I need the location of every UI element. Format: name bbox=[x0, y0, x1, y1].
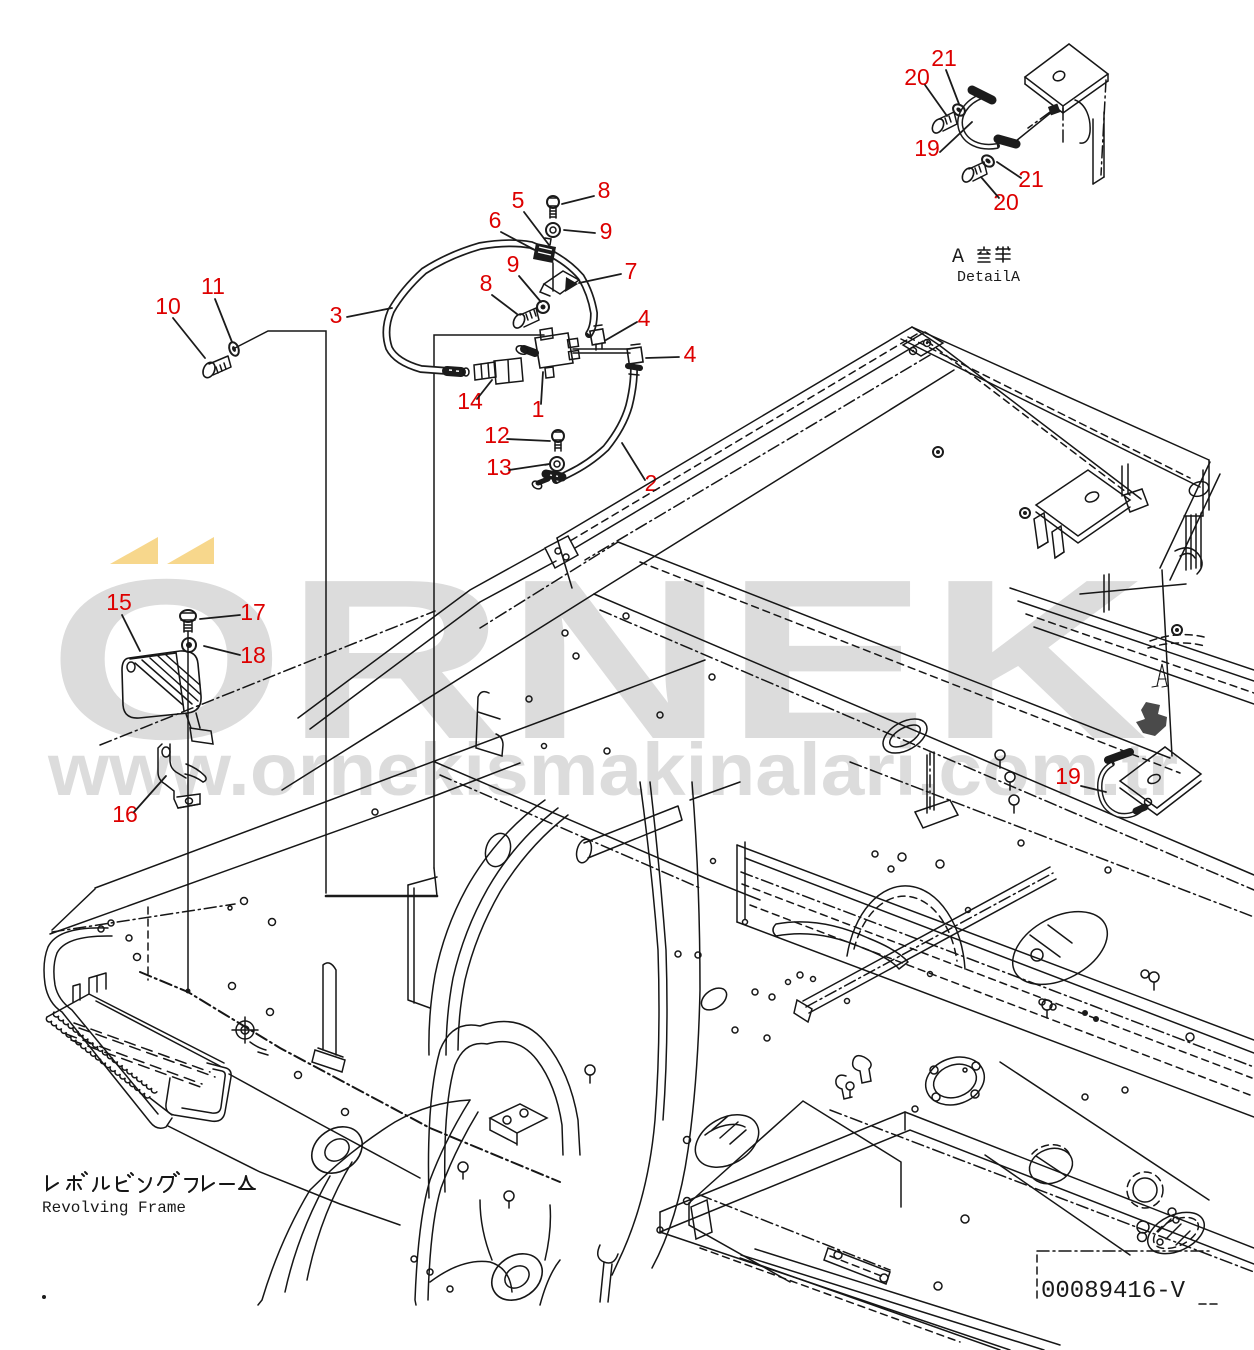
svg-text:8: 8 bbox=[480, 270, 493, 296]
svg-text:DetailA: DetailA bbox=[957, 269, 1020, 286]
svg-text:14: 14 bbox=[457, 388, 483, 414]
svg-text:11: 11 bbox=[201, 273, 225, 299]
svg-text:4: 4 bbox=[638, 305, 651, 331]
svg-text:21: 21 bbox=[931, 45, 957, 71]
svg-text:A: A bbox=[952, 246, 964, 269]
svg-text:9: 9 bbox=[507, 251, 520, 277]
svg-text:00089416-V: 00089416-V bbox=[1041, 1278, 1186, 1305]
svg-text:21: 21 bbox=[1018, 166, 1044, 192]
svg-text:10: 10 bbox=[155, 293, 181, 319]
svg-text:3: 3 bbox=[330, 302, 343, 328]
svg-text:5: 5 bbox=[512, 187, 525, 213]
svg-text:18: 18 bbox=[240, 642, 266, 668]
svg-text:12: 12 bbox=[484, 422, 510, 448]
svg-text:9: 9 bbox=[600, 218, 613, 244]
svg-text:17: 17 bbox=[240, 599, 266, 625]
svg-text:www.ornekismakinalari.com.tr: www.ornekismakinalari.com.tr bbox=[47, 728, 1178, 811]
svg-text:8: 8 bbox=[598, 177, 611, 203]
svg-text:20: 20 bbox=[993, 189, 1019, 215]
svg-text:19: 19 bbox=[1055, 763, 1081, 789]
svg-text:1: 1 bbox=[532, 396, 545, 422]
svg-text:19: 19 bbox=[914, 135, 940, 161]
svg-text:13: 13 bbox=[486, 454, 512, 480]
svg-text:15: 15 bbox=[106, 589, 132, 615]
svg-text:7: 7 bbox=[625, 258, 638, 284]
svg-text:6: 6 bbox=[489, 207, 502, 233]
svg-text:Revolving Frame: Revolving Frame bbox=[42, 1199, 186, 1217]
svg-text:16: 16 bbox=[112, 801, 138, 827]
svg-text:4: 4 bbox=[684, 341, 697, 367]
